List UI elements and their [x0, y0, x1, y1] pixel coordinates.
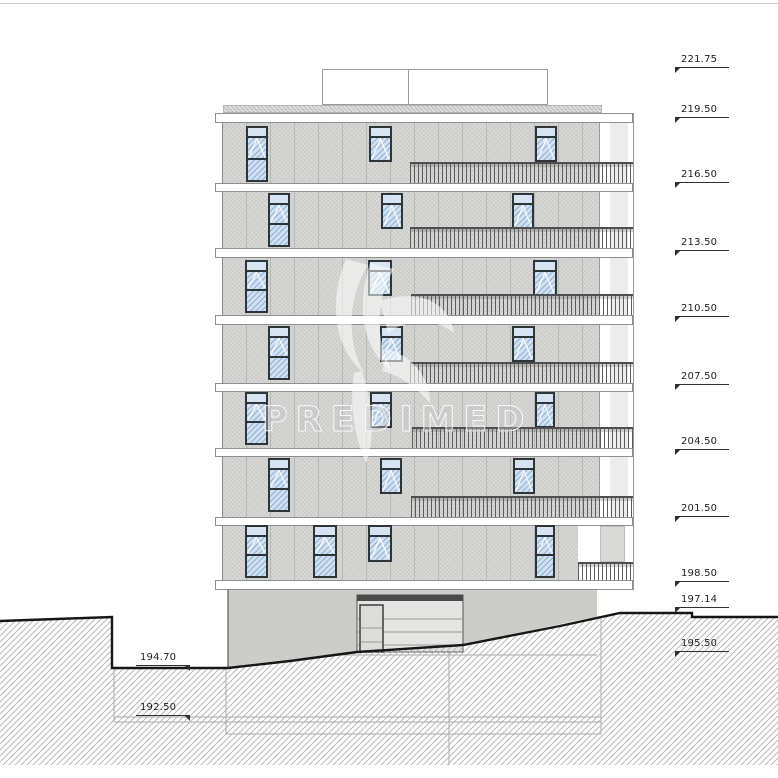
- level-marker-arrow: [675, 516, 681, 522]
- level-marker-arrow: [675, 182, 681, 188]
- elevation-label-221.75: 221.75: [677, 53, 729, 68]
- elevation-label-207.50: 207.50: [677, 370, 729, 385]
- level-marker-arrow: [675, 250, 681, 256]
- level-marker-arrow: [675, 607, 681, 613]
- elevation-labels-layer: 221.75219.50216.50213.50210.50207.50204.…: [0, 0, 778, 778]
- elevation-label-192.50: 192.50: [136, 701, 188, 716]
- level-marker-arrow: [675, 67, 681, 73]
- level-marker-arrow: [675, 581, 681, 587]
- elevation-label-213.50: 213.50: [677, 236, 729, 251]
- level-marker-arrow: [675, 384, 681, 390]
- level-marker-arrow: [675, 117, 681, 123]
- elevation-label-197.14: 197.14: [677, 593, 729, 608]
- elevation-label-204.50: 204.50: [677, 435, 729, 450]
- level-marker-arrow: [675, 651, 681, 657]
- elevation-label-210.50: 210.50: [677, 302, 729, 317]
- elevation-label-219.50: 219.50: [677, 103, 729, 118]
- elevation-label-216.50: 216.50: [677, 168, 729, 183]
- level-marker-arrow: [675, 449, 681, 455]
- elevation-label-201.50: 201.50: [677, 502, 729, 517]
- elevation-label-198.50: 198.50: [677, 567, 729, 582]
- elevation-label-195.50: 195.50: [677, 637, 729, 652]
- level-marker-arrow: [184, 665, 190, 671]
- level-marker-arrow: [675, 316, 681, 322]
- elevation-drawing: PREDIMED 221.75219.50216.50213.50210.502…: [0, 0, 778, 778]
- level-marker-arrow: [184, 715, 190, 721]
- elevation-label-194.70: 194.70: [136, 651, 188, 666]
